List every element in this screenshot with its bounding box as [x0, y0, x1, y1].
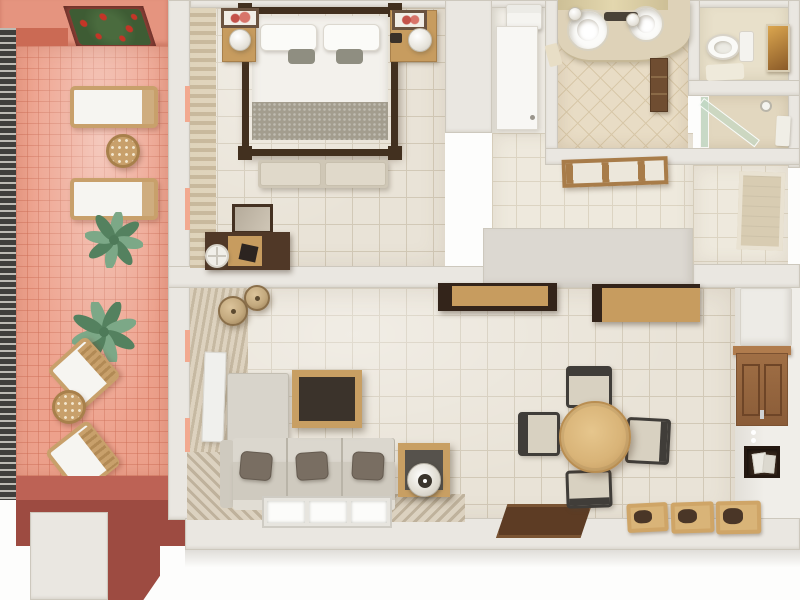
south-window [262, 496, 392, 528]
flower-bush [68, 9, 152, 45]
sun-lounger-1 [70, 86, 158, 128]
coffee-table [292, 370, 362, 428]
hanging-shelf-2 [592, 284, 700, 322]
shower-head [760, 100, 772, 112]
wall-picture-right [392, 10, 427, 30]
niche-paper [762, 454, 776, 473]
lamp-shade-hole [418, 474, 432, 488]
divider-block [483, 228, 693, 288]
sink-basin [577, 19, 599, 41]
desk-stool [205, 244, 229, 268]
deck-strip-right [388, 494, 465, 522]
toilet-wall-art [766, 24, 790, 72]
cabinet-shelf-line [651, 93, 667, 95]
wall-picture-left [221, 8, 259, 28]
sofa-back-divider [341, 438, 343, 464]
terrace-railing [0, 28, 16, 500]
planter-tray-3 [716, 501, 762, 535]
folding-screen [201, 352, 226, 443]
cabinet-shelf-line [651, 76, 667, 78]
chair-back [521, 415, 528, 453]
dining-chair-right [625, 417, 671, 465]
cabinet-door-panel [764, 364, 782, 416]
vanity-wall-lamp-1 [568, 7, 582, 21]
stool-cross [208, 255, 226, 257]
palm-plant-1 [85, 212, 143, 268]
terrace-outside-left [0, 500, 16, 600]
terrace-red-block [108, 546, 160, 600]
outside-bottom [185, 550, 800, 600]
wall-niche [744, 446, 780, 478]
dark-rug [496, 504, 592, 538]
wall-spot-light [751, 438, 756, 443]
tray-plant [633, 509, 652, 523]
bed-pillow-1 [260, 24, 317, 51]
bedroom-curtains [190, 8, 216, 268]
hall-right-wall [693, 264, 800, 288]
pendant-center [231, 309, 236, 314]
cabinet-handle [760, 410, 764, 419]
toilet-mat [706, 63, 745, 81]
toilet-seat-inner [714, 41, 732, 54]
round-wicker-table-1 [106, 134, 140, 168]
wall-spot-light [751, 430, 756, 435]
bed-post [238, 146, 252, 160]
bench-cushion [325, 162, 386, 186]
sofa-pillow-2 [295, 451, 329, 481]
window-pane [351, 501, 387, 523]
round-wicker-table-2 [52, 390, 86, 424]
bed-cushion-2 [336, 49, 363, 64]
wicker-pendant-lamp-2 [244, 285, 270, 311]
sofa-pillow-1 [239, 451, 273, 482]
planter-tray-1 [626, 502, 668, 533]
chair-back [569, 497, 609, 505]
window-pane [267, 501, 305, 523]
terrace-bench-top [16, 476, 185, 502]
round-dining-table [559, 401, 631, 473]
phone-on-nightstand [390, 33, 402, 43]
shelf-wood-front [452, 286, 548, 306]
toilet-room-bottom-wall [688, 80, 800, 96]
desk-notebook [239, 243, 259, 262]
lamp-bulb [423, 479, 427, 483]
chair-back [659, 422, 668, 462]
entry-doormat [737, 171, 786, 251]
bathroom-door [496, 26, 538, 130]
tall-cabinet [740, 288, 792, 346]
bench-cushion [260, 162, 321, 186]
sofa-arm [220, 440, 234, 508]
side-table-lamp [407, 463, 441, 497]
bedroom-hall-wall [445, 0, 492, 133]
cabinet-door-panel [742, 364, 760, 416]
planter-tray-2 [670, 501, 714, 533]
terrace [0, 0, 190, 600]
sofa-pillow-3 [351, 451, 384, 481]
sofa-back-divider [286, 438, 288, 464]
dining-chair-left [518, 412, 560, 456]
vanity-wall-lamp-2 [626, 13, 640, 27]
toilet-tank [739, 31, 754, 62]
bed-foot-bench [258, 160, 388, 188]
pendant-center [255, 296, 260, 301]
bed-post [388, 146, 402, 160]
bed-pillow-2 [323, 24, 380, 51]
terrace-white-block [30, 512, 108, 600]
bathroom-left-wall [545, 0, 558, 150]
lounger-headrest [142, 182, 154, 216]
wall-cabinet [736, 353, 788, 426]
dining-chair-bottom [565, 469, 612, 509]
chair-back [569, 369, 609, 376]
door-handle [530, 115, 535, 120]
tray-plant [723, 508, 744, 524]
bed-blanket [252, 102, 388, 140]
hanging-shelf-1 [438, 283, 557, 311]
tray-plant [678, 509, 698, 524]
floor-plan [0, 0, 800, 600]
shower-towel [775, 116, 791, 147]
window-pane [309, 501, 347, 523]
sofa-chaise [227, 373, 289, 443]
table-lamp-right [408, 28, 432, 52]
entrance-door [562, 156, 669, 188]
flower-planter [63, 6, 157, 48]
dressing-mirror [232, 204, 273, 234]
bed-cushion-1 [288, 49, 315, 64]
table-lamp-left [229, 29, 251, 51]
bathroom-cabinet [650, 58, 668, 112]
toilet-bowl [706, 34, 740, 60]
lounger-headrest [142, 90, 154, 124]
